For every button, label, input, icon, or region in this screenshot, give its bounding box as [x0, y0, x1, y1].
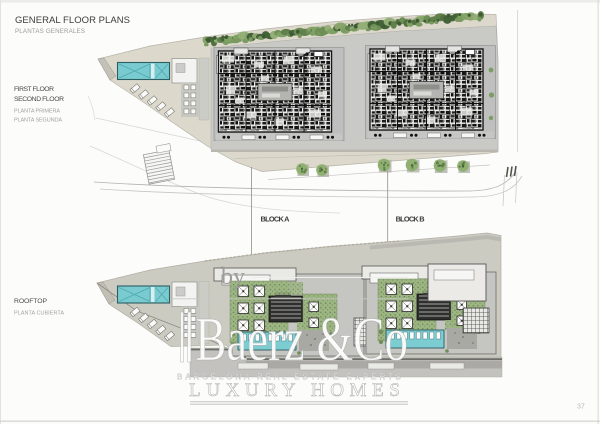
svg-text:FIRST FLOOR: FIRST FLOOR [14, 86, 54, 93]
svg-text:ROOFTOP: ROOFTOP [14, 298, 47, 305]
svg-text:Baerz &Co: Baerz &Co [195, 306, 408, 374]
svg-text:GENERAL FLOOR PLANS: GENERAL FLOOR PLANS [15, 15, 130, 26]
svg-text:SECOND FLOOR: SECOND FLOOR [14, 96, 64, 103]
svg-text:LUXURY HOMES: LUXURY HOMES [189, 380, 406, 401]
svg-text:37: 37 [577, 404, 585, 411]
svg-text:PLANTA CUBIERTA: PLANTA CUBIERTA [14, 311, 64, 317]
svg-text:BLOCK B: BLOCK B [396, 214, 425, 223]
svg-text:BLOCK A: BLOCK A [261, 214, 291, 223]
svg-text:PLANTA PRIMERA: PLANTA PRIMERA [14, 109, 60, 115]
svg-text:PLANTA SEGUNDA: PLANTA SEGUNDA [14, 118, 62, 124]
svg-text:by: by [221, 264, 245, 290]
svg-text:PLANTAS GENERALES: PLANTAS GENERALES [15, 28, 85, 35]
